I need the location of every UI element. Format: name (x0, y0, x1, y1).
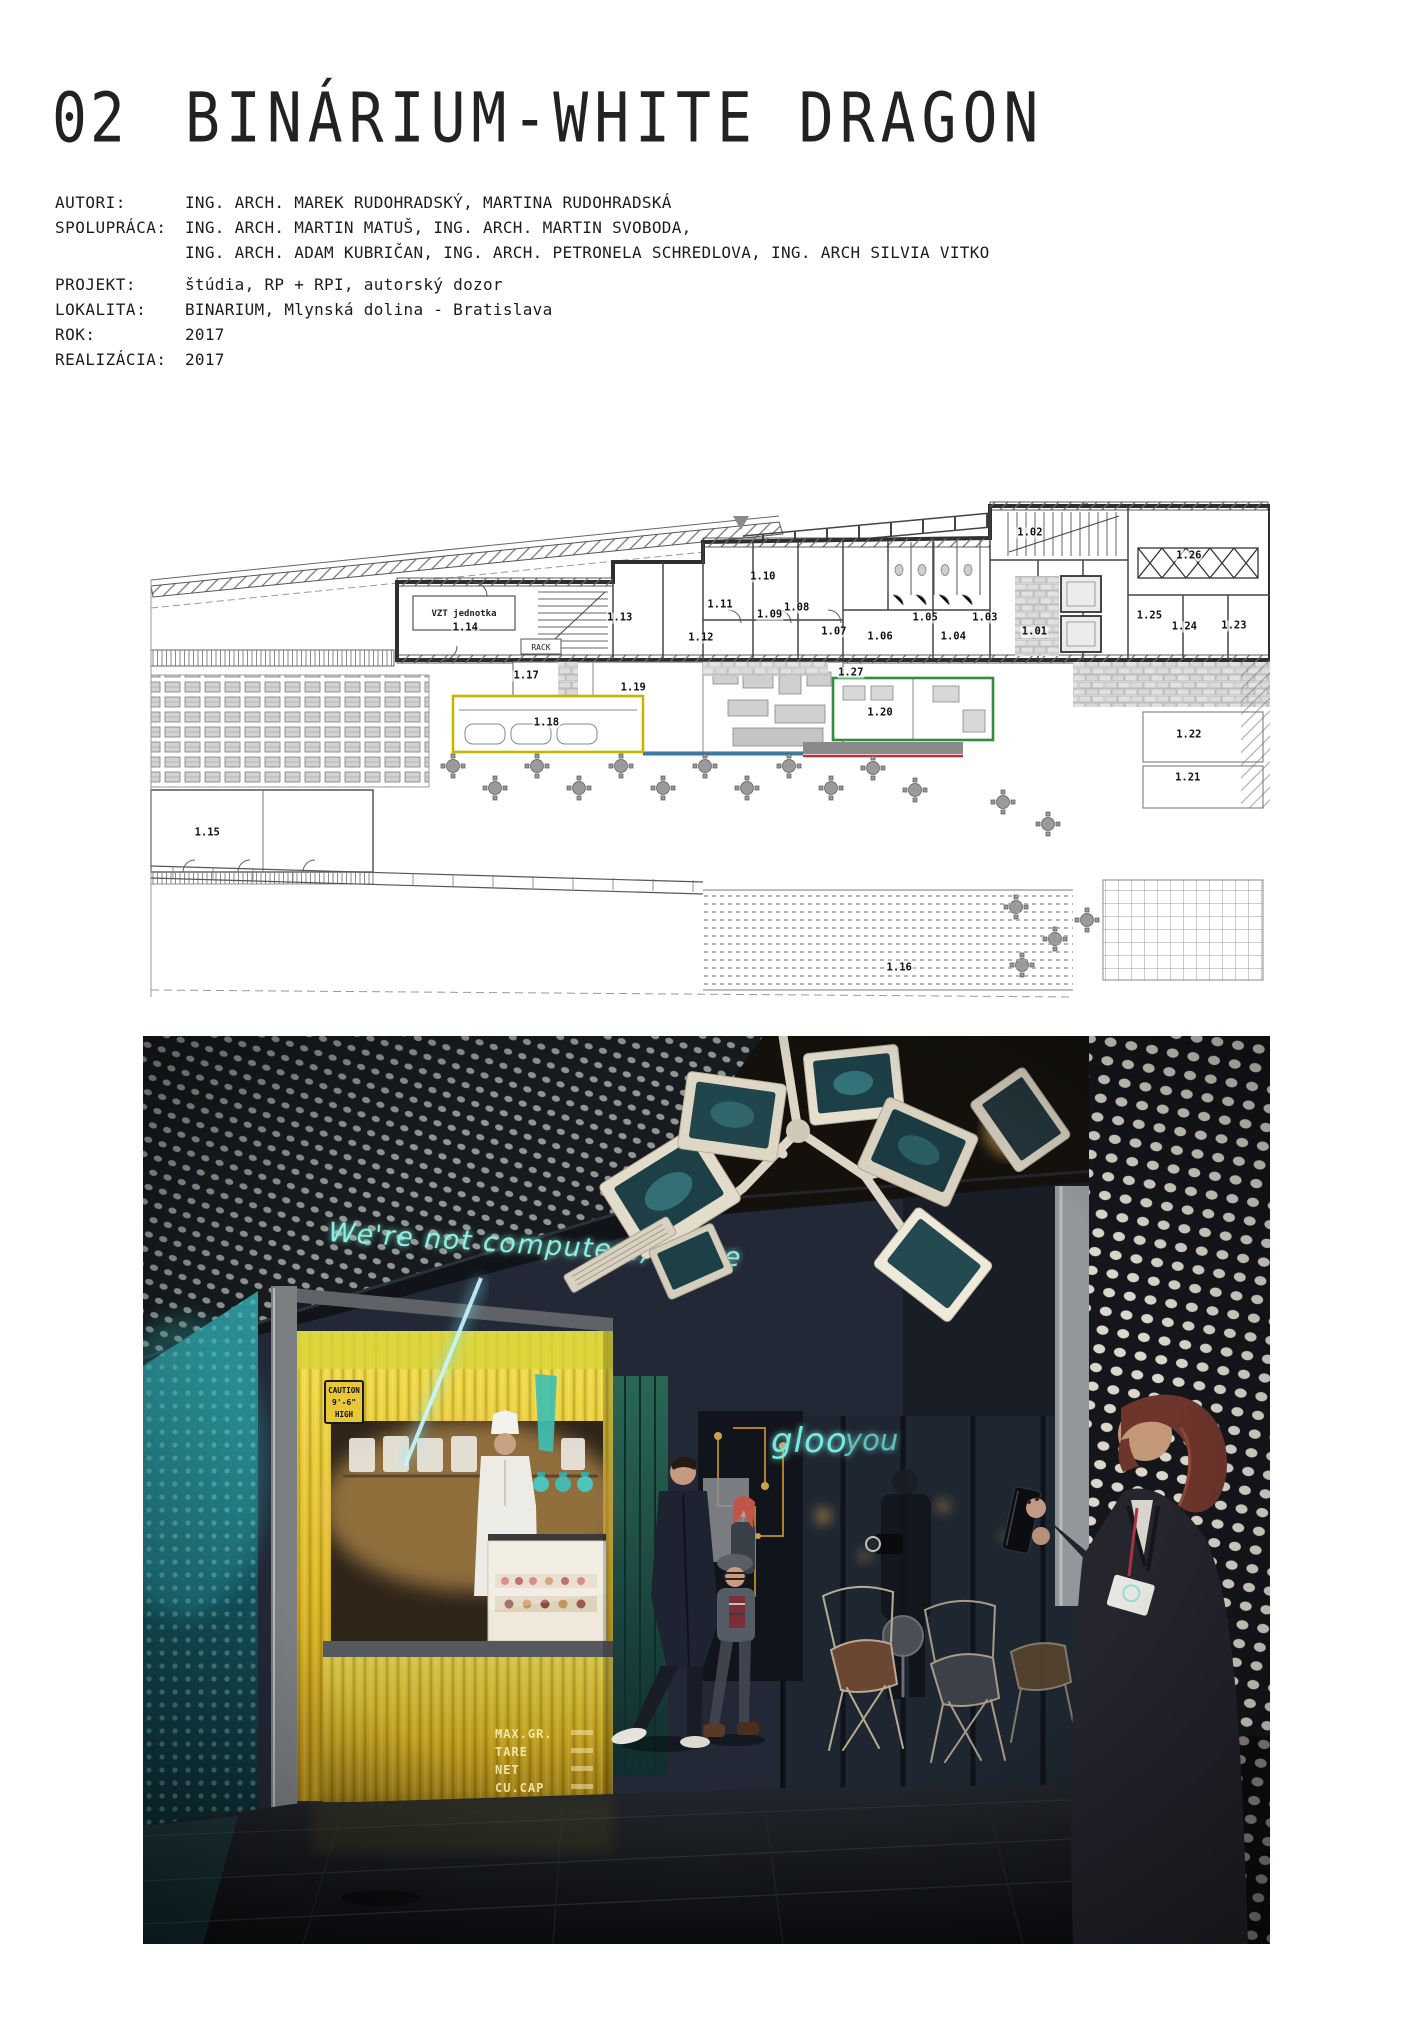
floor-plan-drawing: VZT jednotka RACK (143, 500, 1270, 1000)
meta-row-rok: ROK: 2017 (55, 322, 1255, 347)
meta-row-lokalita: LOKALITA: BINARIUM, Mlynská dolina - Bra… (55, 297, 1255, 322)
rendering-scene: We're not computers, we're (143, 1036, 1270, 1944)
rack-label: RACK (531, 643, 550, 652)
page-number: 02 (52, 78, 128, 158)
meta-row-realizacia: REALIZÁCIA: 2017 (55, 347, 1255, 372)
project-metadata: AUTORI: ING. ARCH. MAREK RUDOHRADSKÝ, MA… (55, 190, 1255, 372)
meta-label: LOKALITA: (55, 297, 185, 322)
meta-row-spolupraca-2: ING. ARCH. ADAM KUBRIČAN, ING. ARCH. PET… (55, 240, 1255, 265)
plan-building: VZT jednotka RACK (397, 502, 1270, 663)
meta-label: SPOLUPRÁCA: (55, 215, 185, 240)
meta-row-spolupraca: SPOLUPRÁCA: ING. ARCH. MARTIN MATUŠ, ING… (55, 215, 1255, 240)
meta-value: ING. ARCH. MARTIN MATUŠ, ING. ARCH. MART… (185, 215, 692, 240)
floor-plan: VZT jednotka RACK (143, 500, 1270, 1000)
interior-rendering: We're not computers, we're (143, 1036, 1270, 1944)
plan-terrace (151, 866, 1263, 997)
meta-value: ING. ARCH. ADAM KUBRIČAN, ING. ARCH. PET… (185, 240, 990, 265)
meta-label (55, 240, 185, 265)
meta-label: ROK: (55, 322, 185, 347)
meta-row-projekt: PROJEKT: štúdia, RP + RPI, autorský dozo… (55, 272, 1255, 297)
meta-value: 2017 (185, 322, 225, 347)
vzt-unit-label: VZT jednotka (431, 608, 496, 619)
meta-value: ING. ARCH. MAREK RUDOHRADSKÝ, MARTINA RU… (185, 190, 672, 215)
meta-value: štúdia, RP + RPI, autorský dozor (185, 272, 503, 297)
meta-row-autori: AUTORI: ING. ARCH. MAREK RUDOHRADSKÝ, MA… (55, 190, 1255, 215)
meta-label: REALIZÁCIA: (55, 347, 185, 372)
meta-label: PROJEKT: (55, 272, 185, 297)
meta-label: AUTORI: (55, 190, 185, 215)
meta-value: BINARIUM, Mlynská dolina - Bratislava (185, 297, 553, 322)
page-title: BINÁRIUM-WHITE DRAGON (185, 78, 1044, 158)
meta-value: 2017 (185, 347, 225, 372)
